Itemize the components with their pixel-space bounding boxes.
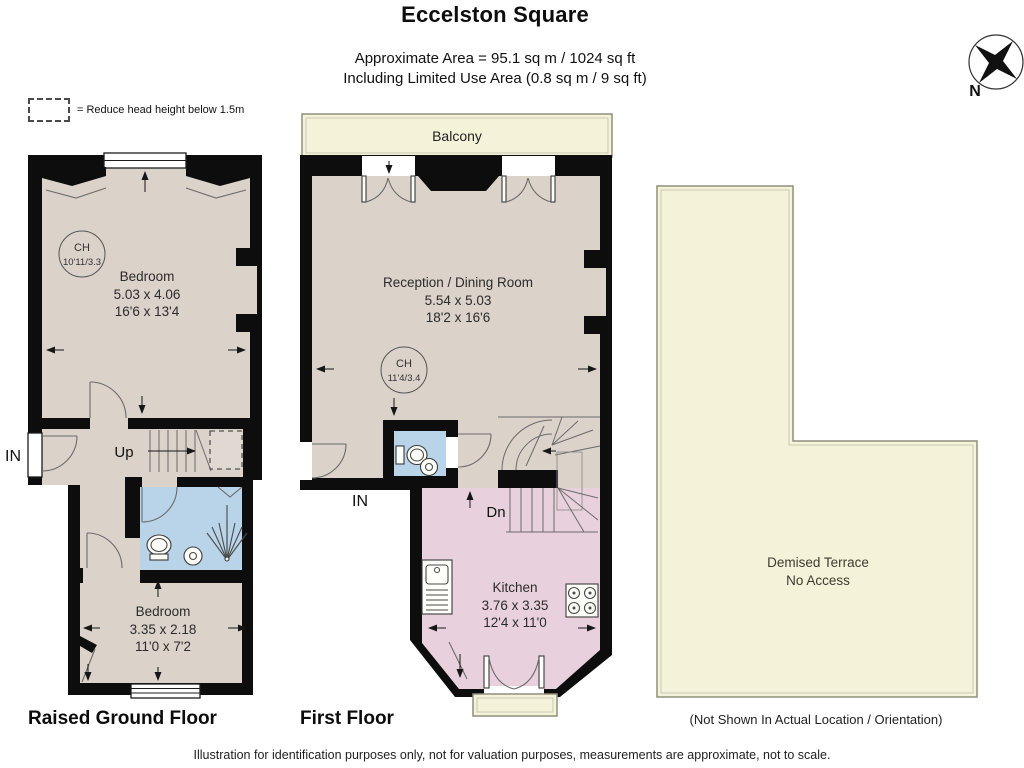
gf-bedroom2-door-gap xyxy=(83,568,140,583)
ff-balcony: Balcony xyxy=(302,114,612,157)
gf-bathroom-door-gap xyxy=(142,477,177,487)
gf-bedroom1-door-gap xyxy=(90,418,128,429)
footer-disclaimer: Illustration for identification purposes… xyxy=(0,748,1024,762)
terrace-note: (Not Shown In Actual Location / Orientat… xyxy=(690,712,943,727)
ff-toilet xyxy=(396,446,404,464)
gf-floor-label: Raised Ground Floor xyxy=(28,708,218,729)
gf-bedroom1-metric: 5.03 x 4.06 xyxy=(114,287,181,302)
ff-chimney-recess xyxy=(592,268,606,316)
reduced-head-height-icon xyxy=(28,98,70,122)
gf-bottom-window xyxy=(131,684,200,698)
ff-dn-label: Dn xyxy=(486,504,505,521)
terrace-access: No Access xyxy=(786,573,850,588)
floorplan-page: CH 10'11/3.3 Bedroom 5.03 x 4.06 16'6 x … xyxy=(0,0,1024,768)
gf-door-zone xyxy=(125,538,140,568)
legend: = Reduce head height below 1.5m xyxy=(28,98,244,122)
gf-ch-title: CH xyxy=(74,242,90,254)
area-line1: Approximate Area = 95.1 sq m / 1024 sq f… xyxy=(0,50,990,67)
gf-ch-value: 10'11/3.3 xyxy=(63,257,101,268)
gf-top-window xyxy=(104,153,186,168)
ff-ch-title: CH xyxy=(396,358,412,370)
ff-kitchen-name: Kitchen xyxy=(492,580,537,595)
header: Eccelston Square Approximate Area = 95.1… xyxy=(0,2,990,87)
gf-toilet xyxy=(147,535,171,560)
gf-basin xyxy=(184,547,202,565)
legend-label: = Reduce head height below 1.5m xyxy=(77,104,244,116)
gf-reduced-head-height-area xyxy=(210,431,242,469)
ff-balcony-label: Balcony xyxy=(432,128,482,144)
ff-rear-balcony xyxy=(473,694,557,716)
gf-bedroom1-imperial: 16'6 x 13'4 xyxy=(115,304,180,319)
gf-chimney-tab-top xyxy=(236,248,250,266)
ground-floor-plan: CH 10'11/3.3 Bedroom 5.03 x 4.06 16'6 x … xyxy=(5,153,262,729)
terrace-name: Demised Terrace xyxy=(767,555,869,570)
gf-bedroom2-metric: 3.35 x 2.18 xyxy=(130,622,197,637)
gf-bedroom1-name: Bedroom xyxy=(120,269,175,284)
ff-reception-imperial: 18'2 x 16'6 xyxy=(426,310,490,325)
ff-sink-unit xyxy=(422,560,452,614)
ff-ch-value: 11'4/3.4 xyxy=(388,373,421,384)
ff-floor-label: First Floor xyxy=(300,708,395,729)
ff-reception-name: Reception / Dining Room xyxy=(383,275,533,290)
gf-chimney-tab-bottom xyxy=(236,314,250,332)
ff-hob xyxy=(566,584,598,617)
ff-kitchen-imperial: 12'4 x 11'0 xyxy=(483,615,546,630)
terrace-plan: Demised Terrace No Access (Not Shown In … xyxy=(657,186,977,727)
ff-center-pier xyxy=(418,176,499,191)
gf-bedroom2-imperial: 11'0 x 7'2 xyxy=(135,639,191,654)
page-title: Eccelston Square xyxy=(0,2,990,28)
gf-entrance-gap xyxy=(28,433,42,477)
gf-in-label: IN xyxy=(5,448,21,465)
gf-up-label: Up xyxy=(114,444,133,461)
ff-wc-basin xyxy=(421,459,438,476)
area-line2: Including Limited Use Area (0.8 sq m / 9… xyxy=(0,70,990,87)
gf-corridor-floor xyxy=(42,477,125,568)
ff-kitchen-metric: 3.76 x 3.35 xyxy=(482,598,549,613)
terrace-area xyxy=(657,186,977,697)
first-floor-plan: Balcony xyxy=(300,114,612,729)
ff-chimney-tab-bottom xyxy=(584,316,600,334)
ff-in-label: IN xyxy=(352,493,368,510)
gf-chimney-recess xyxy=(243,266,257,314)
gf-bedroom2-name: Bedroom xyxy=(136,604,191,619)
ff-reception-metric: 5.54 x 5.03 xyxy=(425,293,492,308)
ff-chimney-tab-top xyxy=(584,250,600,268)
